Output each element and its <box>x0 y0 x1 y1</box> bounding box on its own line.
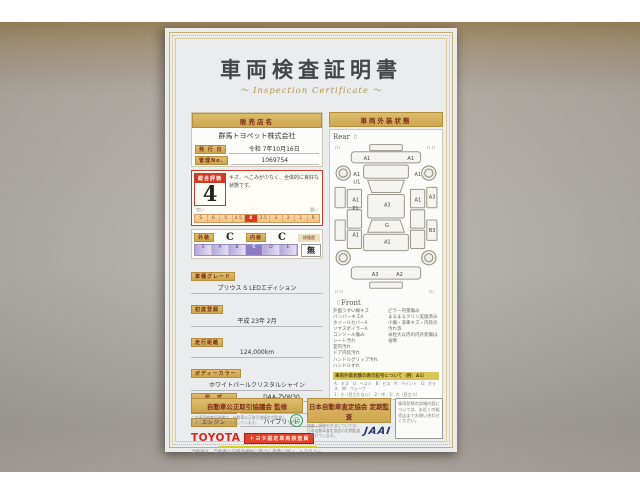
note-line: 米粒大以内の内外装傷は省略 <box>388 333 439 345</box>
certificate-title: 車両検査証明書 <box>165 54 457 84</box>
grade-letter-scale: SABCDE <box>194 244 298 256</box>
grade-letter-B: B <box>229 245 246 255</box>
condition-notes-right: ピラー内張傷みまるまるクリン実施済み小傷・洗車キズ・内装の汚れ等米粒大以内の内外… <box>388 309 439 370</box>
jaai-banner-title: 日本自動車査定協会 定期監査 <box>307 398 391 423</box>
inspection-certificate-document: 車両検査証明書 ～ Inspection Certificate ～ 販売店名 … <box>165 28 457 452</box>
scale-good-label: 良い <box>196 207 204 213</box>
footer-banners: 自動車公正取引協議会 監修 この車両検査証明書は、自動車公正取引協議会が監修した… <box>191 398 443 439</box>
rating-scale-seg-4.5: 4.5 <box>233 215 246 222</box>
overall-rating-cell: 総合評価 4 <box>194 173 226 206</box>
rating-scale-seg-1: 1 <box>295 215 308 222</box>
grade-letter-E: E <box>280 245 297 255</box>
left-column: 販売店名 群馬トヨペット株式会社 発 行 日 令和 7年10月16日 管理No.… <box>191 112 323 400</box>
grade-letter-D: D <box>263 245 280 255</box>
rating-scale-seg-R: R <box>308 215 320 222</box>
scale-bad-label: 悪い <box>310 207 318 213</box>
symbol-legend-header: 車両外装状態の表示記号について（例：A1） <box>333 372 439 380</box>
damage-code-A2: A2 <box>396 272 403 278</box>
wheel-mark: (1) <box>429 289 435 293</box>
damage-code-A1: A1 <box>364 156 371 162</box>
condition-notes: 外面うすい線キズバンパーキズAホイールカバーAリヤスポイラーAコンソール傷みシー… <box>333 309 439 370</box>
dealer-contact-note: 車両状態の詳細内容については、お近くの販売店までお問い合わせください。 <box>395 398 443 439</box>
wheel-mark: (1.1) <box>427 146 436 150</box>
rear-arrow-icon: ⇧ <box>353 134 358 141</box>
note-line: ハンドルグリップ汚れ <box>333 358 384 364</box>
repair-history-label: 修復歴 <box>298 234 320 242</box>
rating-comment: キズ、へこみが少なく、全体的に良好な状態です。 <box>229 173 320 206</box>
vehicle-field-2: 走行距離124,000km <box>191 329 323 358</box>
dealer-name: 群馬トヨペット株式会社 <box>192 128 322 143</box>
fair-trade-seal-icon <box>290 414 303 427</box>
interior-grade: C <box>266 232 298 243</box>
field-label: ボディーカラー <box>191 369 241 378</box>
damage-code-A1: A1 <box>384 239 391 245</box>
damage-code-A1: A1 <box>415 198 422 204</box>
dealer-header-bar: 販売店名 <box>192 113 322 128</box>
field-label: 走行距離 <box>191 338 223 347</box>
overall-rating-box: 総合評価 4 キズ、へこみが少なく、全体的に良好な状態です。 良い 悪い S65… <box>191 170 323 226</box>
condition-notes-left: 外面うすい線キズバンパーキズAホイールカバーAリヤスポイラーAコンソール傷みシー… <box>333 309 384 370</box>
rear-label: Rear⇧ <box>333 133 439 141</box>
grade-letter-C: C <box>246 245 263 255</box>
exterior-state-header: 車両外装状態 <box>329 112 443 127</box>
field-value: 平成 23年 2月 <box>191 315 323 327</box>
damage-code-A3: A3 <box>384 203 391 209</box>
damage-code-G: G <box>385 223 389 229</box>
grade-letter-A: A <box>212 245 229 255</box>
fair-trade-banner: 自動車公正取引協議会 監修 この車両検査証明書は、自動車公正取引協議会が監修した… <box>191 398 303 439</box>
damage-code-A3: A3 <box>429 195 436 201</box>
rating-scale-seg-4: 4 <box>245 215 258 222</box>
jaai-banner: 日本自動車査定協会 定期監査 検査・評価の方法については、日本自動車査定協会の定… <box>307 398 391 439</box>
overall-rating-value: 4 <box>195 183 225 205</box>
rating-scale-seg-2: 2 <box>283 215 296 222</box>
rating-scale-seg-S: S <box>195 215 208 222</box>
vehicle-field-1: 初度登録平成 23年 2月 <box>191 296 323 327</box>
rating-scale-seg-6: 6 <box>208 215 221 222</box>
bottom-white-strip <box>0 473 640 480</box>
rating-scale-seg-5: 5 <box>220 215 233 222</box>
issue-date-value: 令和 7年10月16日 <box>229 144 319 154</box>
content-columns: 販売店名 群馬トヨペット株式会社 発 行 日 令和 7年10月16日 管理No.… <box>191 112 443 400</box>
certificate-subtitle: ～ Inspection Certificate ～ <box>165 84 457 96</box>
repair-history-value: 無 <box>301 244 321 257</box>
legend-line: A：キズ U：ヘコミ B：ビス P：ペイント G：ガラス W：ウェーブ <box>334 381 438 392</box>
inspector-name-highlight <box>219 446 317 448</box>
vehicle-field-0: 車種グレードプリウス S LEDエディション <box>191 263 323 294</box>
wheel-mark: (1) <box>335 146 341 150</box>
issue-date-row: 発 行 日 令和 7年10月16日 <box>192 143 322 155</box>
manage-no-value: 1069754 <box>231 157 319 165</box>
inspection-disclaimer: 当検査は、自動車公正競争規約に基づく基準に従い、トヨタユーゼックが認定した検査員… <box>191 450 323 462</box>
interior-label: 内装 <box>246 233 266 242</box>
damage-code-A1: A1 <box>352 198 359 204</box>
grade-box: 外装 C 内装 C 修復歴 SABCDE 無 <box>191 229 323 259</box>
fair-trade-note: この車両検査証明書は、自動車公正取引協議会が監修した表示基準に基づいて作成してい… <box>191 416 288 426</box>
exterior-label: 外装 <box>194 233 214 242</box>
car-damage-diagram: A1A1A1U1A1P1A1A3GA1A1A1A3B3A3A2 (1)(1.1)… <box>333 141 439 299</box>
field-label: 初度登録 <box>191 305 223 314</box>
field-label: 車種グレード <box>191 272 235 281</box>
front-label: ⇩Front <box>333 299 439 307</box>
field-value: ホワイトパールクリスタルシャイン <box>191 379 323 391</box>
field-value: プリウス S LEDエディション <box>191 282 323 294</box>
damage-code-A1: A1 <box>407 156 414 162</box>
wheel-mark: (2.1) <box>335 289 344 293</box>
field-value: 124,000km <box>191 348 323 358</box>
damage-code-B3: B3 <box>429 228 436 234</box>
dealer-box: 販売店名 群馬トヨペット株式会社 発 行 日 令和 7年10月16日 管理No.… <box>191 112 323 167</box>
rating-scale-ends: 良い 悪い <box>194 206 320 213</box>
exterior-diagram-panel: Rear⇧ <box>329 129 443 400</box>
rating-scale-bar: S654.543.5321R <box>194 214 320 223</box>
manage-no-label: 管理No. <box>195 156 228 165</box>
grade-letter-S: S <box>195 245 212 255</box>
legend-line: 1：小（目立たない） 2：中 3：大（目立つ） <box>334 392 438 398</box>
damage-code-P1: P1 <box>352 206 358 212</box>
right-column: 車両外装状態 Rear⇧ <box>329 112 443 400</box>
damage-code-A1: A1 <box>353 172 360 178</box>
damage-code-U1: U1 <box>353 179 360 185</box>
issue-date-label: 発 行 日 <box>195 145 226 154</box>
damage-code-A3: A3 <box>372 272 379 278</box>
rating-scale-seg-3.5: 3.5 <box>258 215 271 222</box>
grade-row: 外装 C 内装 C 修復歴 <box>192 230 322 243</box>
jaai-logo: JAAI <box>363 426 391 437</box>
rating-scale-seg-3: 3 <box>270 215 283 222</box>
symbol-legend-lines: A：キズ U：ヘコミ B：ビス P：ペイント G：ガラス W：ウェーブ1：小（目… <box>333 380 439 398</box>
damage-code-A1: A1 <box>415 172 422 178</box>
vehicle-field-3: ボディーカラーホワイトパールクリスタルシャイン <box>191 360 323 391</box>
fair-trade-banner-title: 自動車公正取引協議会 監修 <box>191 398 303 413</box>
note-line: ハンドルすれ <box>333 364 384 370</box>
jaai-note: 検査・評価の方法については、日本自動車査定協会の定期監査を受けています。 <box>307 424 362 439</box>
damage-code-A1: A1 <box>352 232 359 238</box>
exterior-grade: C <box>214 232 246 243</box>
note-line: 小傷・洗車キズ・内装の汚れ等 <box>388 321 439 333</box>
manage-no-row: 管理No. 1069754 <box>192 155 322 166</box>
